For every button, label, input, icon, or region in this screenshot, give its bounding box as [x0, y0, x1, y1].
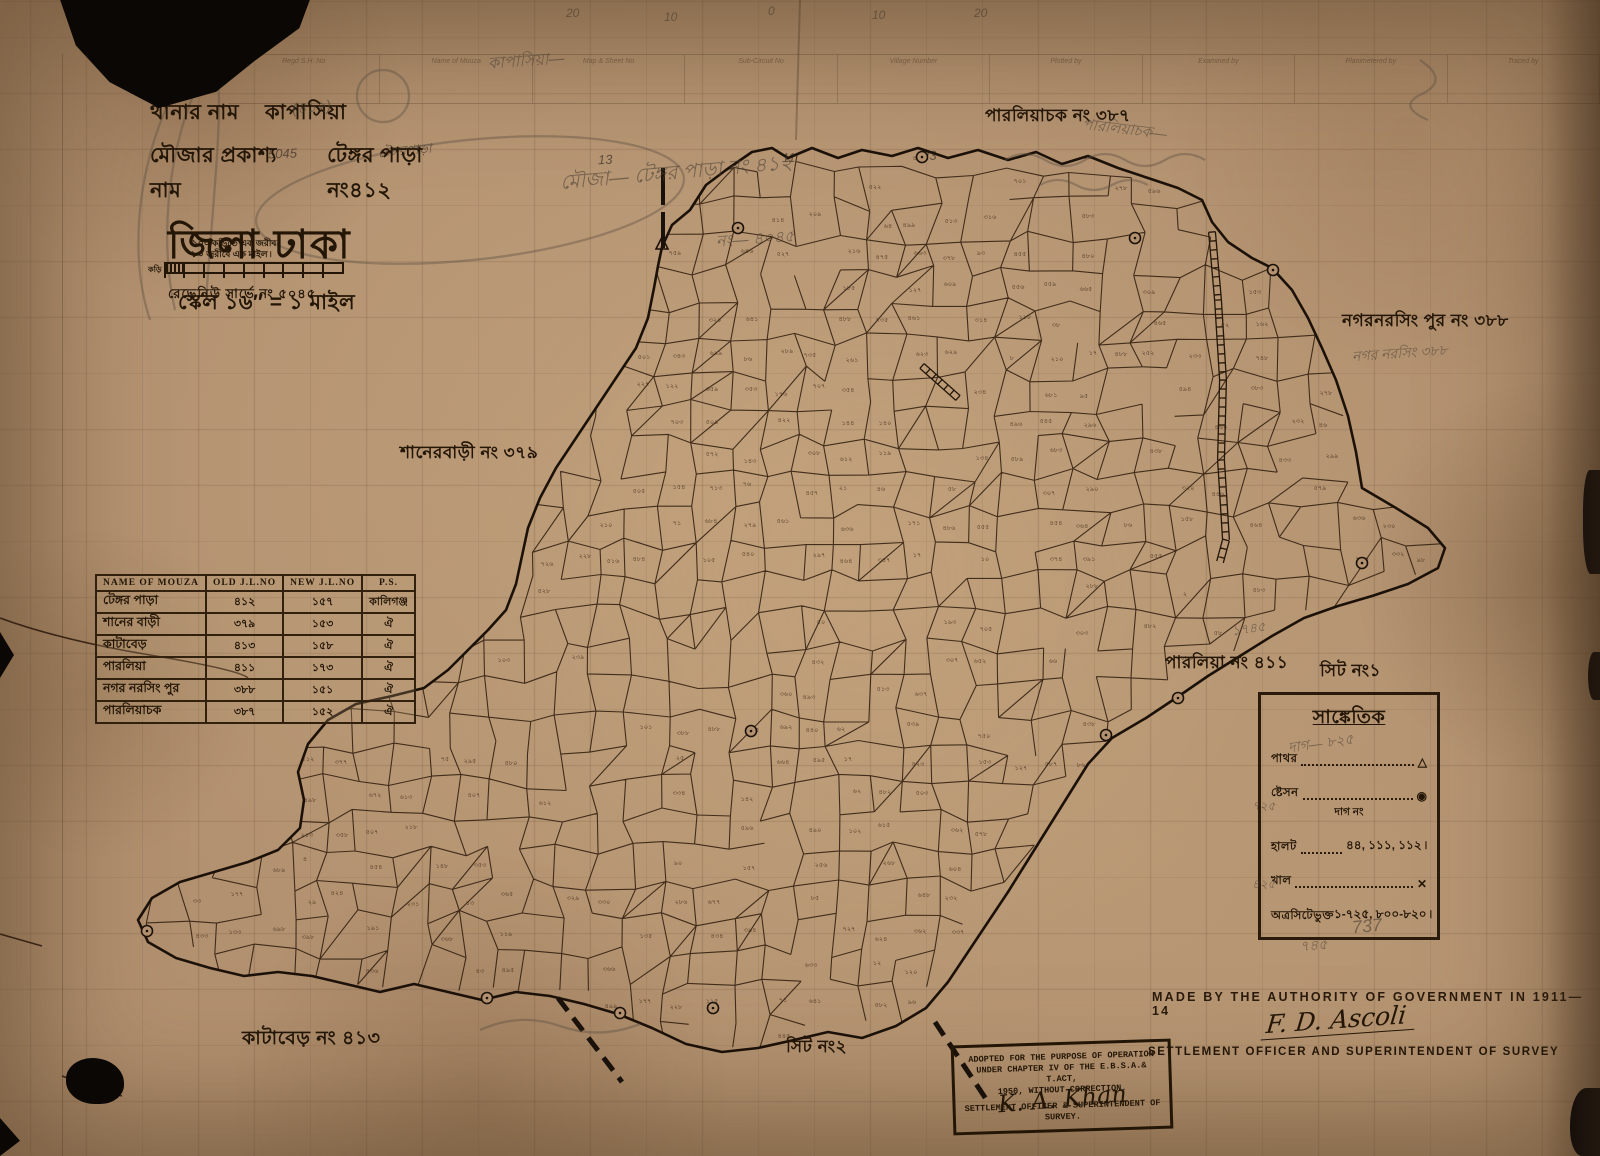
svg-text:৫২২: ৫২২: [869, 183, 882, 191]
pencil-note: ৭৪৫: [1299, 933, 1328, 959]
svg-text:৫৮২: ৫৮২: [875, 1001, 888, 1009]
svg-text:২৬১: ২৬১: [846, 356, 859, 364]
svg-text:৮৬: ৮৬: [1124, 521, 1133, 529]
svg-text:১১৯: ১১৯: [879, 449, 892, 457]
svg-text:৬৬৫: ৬৬৫: [1080, 285, 1093, 293]
svg-text:১১৫: ১১৫: [706, 997, 719, 1005]
table-row: টেঙ্গর পাড়া৪১২১৫৭কালিগঞ্জ: [96, 591, 415, 613]
svg-text:৬৬৪: ৬৬৪: [777, 758, 790, 766]
mouza-value: টেঙ্গর পাড়া নং৪১২: [327, 139, 480, 209]
dotted-leader: [1301, 764, 1413, 766]
svg-text:৩৬৪: ৩৬৪: [1076, 522, 1089, 530]
svg-text:৪৬০: ৪৬০: [1215, 423, 1228, 431]
svg-text:৪২২: ৪২২: [778, 416, 791, 424]
dotted-leader: [1295, 886, 1412, 888]
svg-text:৩৭৮: ৩৭৮: [943, 254, 956, 262]
svg-text:৫৪০: ৫৪০: [742, 550, 755, 558]
svg-text:৩২০: ৩২০: [709, 316, 722, 324]
form-column-header: Village Number: [838, 55, 990, 103]
svg-text:২: ২: [1183, 590, 1187, 598]
scale-bar-block: ১০০ কড়িতে এক জরীব ৷ ৮০ জরীবে এক মাইল ৷ …: [148, 238, 373, 306]
svg-text:৮৫: ৮৫: [811, 894, 819, 902]
svg-text:৪৬: ৪৬: [1319, 421, 1328, 429]
torn-blob-bottom-left: [66, 1058, 124, 1104]
ruler-number: 20: [974, 6, 987, 20]
svg-text:৩৩৪: ৩৩৪: [673, 789, 686, 797]
table-cell: ১৫৮: [283, 635, 362, 657]
svg-text:৭০৫: ৭০৫: [980, 625, 993, 633]
svg-text:১৭৭: ১৭৭: [231, 890, 244, 898]
svg-text:১০১: ১০১: [640, 723, 653, 731]
svg-text:৫৫৬: ৫৫৬: [1012, 283, 1025, 291]
svg-text:১২২: ১২২: [666, 382, 679, 390]
torn-edge-left: [0, 632, 14, 678]
svg-text:২২৭: ২২৭: [637, 380, 650, 388]
svg-text:২৩৩: ২৩৩: [1189, 352, 1202, 360]
svg-text:৩২০: ৩২০: [1182, 484, 1195, 492]
svg-text:৭২৭: ৭২৭: [843, 925, 856, 933]
svg-text:৩১৬: ৩১৬: [984, 213, 997, 221]
table-cell: ঐ: [362, 657, 415, 679]
svg-text:১৫৭: ১৫৭: [743, 864, 756, 872]
svg-text:২৭৮: ২৭৮: [1320, 389, 1333, 397]
form-column-header: Examined by: [1143, 55, 1295, 103]
svg-text:৪৪৬: ৪৪৬: [1212, 490, 1225, 498]
svg-text:৬০৪: ৬০৪: [949, 865, 962, 873]
svg-text:৫৫৫: ৫৫৫: [977, 523, 990, 531]
legend-symbol-icon: ◉: [1417, 789, 1427, 803]
svg-text:৭০৭: ৭০৭: [813, 382, 826, 390]
scale-bar-graphic: [164, 262, 344, 274]
svg-text:১৭: ১৭: [913, 551, 921, 559]
svg-text:৪৩৩: ৪৩৩: [196, 932, 209, 940]
officer-title-line: SETTLEMENT OFFICER AND SUPERINTENDENT OF…: [1148, 1046, 1559, 1058]
svg-text:৬২৪: ৬২৪: [875, 935, 888, 943]
svg-text:২৯: ২৯: [308, 898, 317, 906]
svg-text:৩২৯: ৩২৯: [567, 894, 580, 902]
svg-text:৩৫৩: ৩৫৩: [474, 861, 487, 869]
legend-value: ১-৭২৫, ৮০০-৮২০ ৷: [1334, 906, 1432, 926]
svg-text:২৯৯: ২৯৯: [1326, 452, 1339, 460]
svg-text:৬১২: ৬১২: [840, 455, 853, 463]
svg-text:৪৯৫: ৪৯৫: [502, 966, 515, 974]
svg-text:১৫৮: ১৫৮: [1181, 515, 1194, 523]
svg-text:৪৩৮: ৪৩৮: [1150, 447, 1163, 455]
svg-text:২৯০: ২৯০: [1086, 485, 1099, 493]
table-row: পারলিয়াচক৩৮৭১৫২ঐ: [96, 701, 415, 723]
svg-text:১১৯: ১১৯: [500, 930, 513, 938]
table-cell: ৩৭৯: [206, 613, 283, 635]
svg-text:৬৩৬: ৬৩৬: [841, 525, 854, 533]
svg-text:৬৫২: ৬৫২: [974, 657, 987, 665]
svg-text:৬৫৯: ৬৫৯: [706, 385, 719, 393]
svg-text:৬৭২: ৬৭২: [369, 791, 382, 799]
pencil-note: ৪২৫: [1252, 876, 1275, 896]
svg-text:১০২: ১০২: [849, 827, 862, 835]
svg-text:৫০৭: ৫০৭: [366, 828, 379, 836]
svg-text:৫০১: ৫০১: [638, 353, 651, 361]
svg-text:১৫৩: ১৫৩: [979, 758, 992, 766]
svg-text:২৯৭: ২৯৭: [813, 551, 826, 559]
ruler-number: 10: [872, 8, 885, 22]
svg-text:৫৮০: ৫৮০: [505, 759, 518, 767]
table-cell: ১৫৭: [283, 591, 362, 613]
svg-text:১৭: ১৭: [1089, 349, 1097, 357]
svg-text:৬০৯: ৬০৯: [944, 280, 957, 288]
svg-text:২৩২: ২৩২: [1292, 417, 1305, 425]
svg-text:২৬৮: ২৬৮: [883, 859, 896, 867]
legend-label: হালট: [1271, 838, 1297, 857]
svg-text:৬২: ৬২: [853, 787, 861, 795]
svg-text:১১৮: ১১৮: [1019, 313, 1032, 321]
svg-text:৭৫: ৭৫: [441, 755, 449, 763]
svg-text:৩০৯: ৩০৯: [1143, 288, 1156, 296]
form-column-header: Planimetered by: [1295, 55, 1447, 103]
svg-text:৪৩৩: ৪৩৩: [1279, 456, 1292, 464]
svg-text:৪১৪: ৪১৪: [772, 216, 785, 224]
svg-text:৬৪৮: ৬৪৮: [918, 891, 931, 899]
svg-text:৯৮: ৯৮: [1417, 556, 1426, 564]
dark-right-edge: [1544, 0, 1600, 1156]
svg-text:৪৩২: ৪৩২: [812, 658, 825, 666]
form-column-header: Plotted by: [990, 55, 1142, 103]
svg-text:৪৯৮: ৪৯৮: [304, 796, 317, 804]
svg-text:৭৫০: ৭৫০: [978, 732, 991, 740]
sheet-number-1-label: সিট নং১: [1320, 658, 1381, 686]
svg-text:২৩১: ২৩১: [407, 900, 420, 908]
svg-text:৩৯৮: ৩৯৮: [302, 933, 315, 941]
svg-text:৭০১: ৭০১: [1014, 177, 1027, 185]
svg-text:৪৮৮: ৪৮৮: [708, 725, 721, 733]
svg-text:৩৩০: ৩৩০: [598, 898, 611, 906]
svg-text:৫৮৭: ৫৮৭: [1045, 760, 1058, 768]
svg-text:৪৫৭: ৪৫৭: [806, 489, 819, 497]
table-cell: ১৫২: [283, 701, 362, 723]
svg-text:২২৮: ২২৮: [579, 552, 592, 560]
mouza-table-header: NAME OF MOUZA: [96, 575, 206, 591]
svg-text:৫২: ৫২: [1221, 321, 1229, 329]
table-cell: ঐ: [362, 635, 415, 657]
svg-text:৮৬: ৮৬: [744, 355, 753, 363]
svg-text:৬৮৯: ৬৮৯: [273, 866, 286, 874]
sheet-number-2-label: সিট নং২: [786, 1034, 847, 1062]
svg-text:৪৬৫: ৪৬৫: [1154, 319, 1167, 327]
svg-text:১২: ১২: [873, 959, 881, 967]
region-label-nagarnarsingpur: নগরনরসিং পুর নং ৩৮৮: [1342, 308, 1509, 336]
ruler-number: 20: [566, 6, 579, 20]
table-row: শানের বাড়ী৩৭৯১৫৩ঐ: [96, 613, 415, 635]
svg-text:১৩৪: ১৩৪: [976, 454, 989, 462]
svg-text:৪৫৫: ৪৫৫: [1014, 250, 1027, 258]
svg-text:৮: ৮: [1010, 354, 1015, 362]
svg-text:৩৯৪: ৩৯৪: [744, 926, 757, 934]
svg-text:৫০৫: ৫০৫: [633, 487, 646, 495]
svg-text:২৭৯: ২৭৯: [744, 521, 757, 529]
svg-text:৪৮৮: ৪৮৮: [839, 315, 852, 323]
svg-text:৫৯৪: ৫৯৪: [1179, 385, 1192, 393]
torn-corner-bottom-right: [1570, 1088, 1600, 1156]
mouza-table-header: OLD J.L.NO: [206, 575, 283, 591]
svg-text:৪৭৫: ৪৭৫: [876, 253, 889, 261]
table-cell: নগর নরসিং পুর: [96, 679, 206, 701]
svg-text:৩৩৭: ৩৩৭: [952, 928, 965, 936]
svg-text:১৪২: ১৪২: [741, 795, 754, 803]
table-cell: ১৫৩: [283, 613, 362, 635]
svg-text:২২৮: ২২৮: [670, 1003, 683, 1011]
svg-text:৪৮৮: ৪৮৮: [1115, 350, 1128, 358]
svg-text:২১৬: ২১৬: [848, 247, 861, 255]
table-cell: ৩৮৮: [206, 679, 283, 701]
svg-text:৩০৮: ৩০৮: [808, 449, 821, 457]
svg-text:৬৪: ৬৪: [884, 222, 892, 230]
svg-text:১৭: ১৭: [844, 755, 852, 763]
svg-text:২৫: ২৫: [676, 754, 684, 762]
table-cell: শানের বাড়ী: [96, 613, 206, 635]
svg-text:৩৩২: ৩৩২: [1392, 550, 1405, 558]
svg-text:১৪০: ১৪০: [879, 419, 892, 427]
svg-text:৪৮৪: ৪৮৪: [633, 555, 646, 563]
svg-text:৮৬: ৮৬: [1077, 761, 1086, 769]
svg-text:৫৮: ৫৮: [1214, 629, 1223, 637]
svg-text:৪৩৮: ৪৩৮: [1083, 720, 1096, 728]
svg-text:৩৫৩: ৩৫৩: [745, 385, 758, 393]
svg-text:৬৮৪: ৬৮৪: [705, 517, 718, 525]
scale-left-label: কড়ি: [148, 264, 162, 277]
legend-label: অত্রসিটেভুক্ত: [1271, 907, 1334, 926]
svg-text:১৭৭: ১৭৭: [639, 997, 652, 1005]
svg-text:৪০৭: ৪০৭: [468, 791, 481, 799]
table-cell: ৪১২: [206, 591, 283, 613]
table-row: কাটাবেড়৪১৩১৫৮ঐ: [96, 635, 415, 657]
svg-text:৭২৬: ৭২৬: [1356, 555, 1369, 563]
svg-text:২৫৬: ২৫৬: [815, 861, 828, 869]
mouza-table-header: NEW J.L.NO: [283, 575, 362, 591]
table-cell: কাটাবেড়: [96, 635, 206, 657]
svg-text:৪২৩: ৪২৩: [912, 760, 925, 768]
ruler-number: 10: [664, 10, 677, 24]
svg-text:৪৫৪: ৪৫৪: [370, 863, 383, 871]
table-cell: ঐ: [362, 701, 415, 723]
svg-text:৬৬৩: ৬৬৩: [914, 249, 927, 257]
mouza-label: মৌজার প্রকাশ্য নাম: [150, 139, 301, 209]
svg-text:১০৫: ১০৫: [703, 556, 716, 564]
svg-text:৪৮৬: ৪৮৬: [943, 524, 956, 532]
svg-text:৫১৩: ৫১৩: [877, 685, 890, 693]
svg-text:১২৭: ১২৭: [909, 286, 922, 294]
table-cell: ঐ: [362, 613, 415, 635]
table-row: নগর নরসিং পুর৩৮৮১৫১ঐ: [96, 679, 415, 701]
table-cell: টেঙ্গর পাড়া: [96, 591, 206, 613]
svg-text:১৫৪: ১৫৪: [673, 483, 686, 491]
table-cell: ৪১৩: [206, 635, 283, 657]
svg-text:৪৯৩: ৪৯৩: [803, 693, 816, 701]
region-label-katabedh: কাটাবেড় নং ৪১৩: [242, 1024, 381, 1056]
table-cell: ঐ: [362, 679, 415, 701]
svg-text:২১৮: ২১৮: [405, 823, 418, 831]
svg-text:২৯৬: ২৯৬: [1084, 421, 1097, 429]
legend-value: ৪৪, ১১১, ১১২ ৷: [1346, 837, 1427, 857]
svg-text:১৪৭: ১৪৭: [878, 149, 891, 157]
svg-text:৩৫৮: ৩৫৮: [336, 831, 349, 839]
torn-edge-right-1: [1583, 470, 1600, 574]
svg-text:৭১: ৭১: [673, 519, 681, 527]
svg-text:৬১৩: ৬১৩: [400, 793, 413, 801]
svg-text:১২৭: ১২৭: [1015, 764, 1028, 772]
table-row: পারলিয়া৪১১১৭৩ঐ: [96, 657, 415, 679]
pencil-note: নং— ৪০৪৫: [715, 223, 795, 255]
svg-text:১৩: ১৩: [466, 899, 475, 907]
legend-row: হালট৪৪, ১১১, ১১২ ৷: [1271, 837, 1427, 857]
table-cell: ৪১১: [206, 657, 283, 679]
svg-text:৩৪৩: ৩৪৩: [673, 352, 686, 360]
svg-text:৬২৩: ৬২৩: [916, 350, 929, 358]
dotted-leader: [1301, 852, 1342, 854]
svg-text:২৭৮: ২৭৮: [1115, 184, 1128, 192]
svg-text:৫০৩: ৫০৩: [916, 789, 929, 797]
svg-text:৫৩৯: ৫৩৯: [907, 720, 920, 728]
svg-text:৫৫৯: ৫৫৯: [1044, 280, 1057, 288]
svg-text:২১০: ২১০: [600, 521, 613, 529]
svg-text:২৩০: ২৩০: [1383, 522, 1396, 530]
svg-text:১৯২: ১৯২: [1084, 153, 1097, 161]
form-left-margin-line: [62, 54, 63, 1156]
svg-text:১৯১: ১৯১: [367, 924, 380, 932]
table-cell: কালিগঞ্জ: [362, 591, 415, 613]
svg-text:১৪৪: ১৪৪: [842, 419, 855, 427]
mouza-table-header: P.S.: [362, 575, 415, 591]
svg-text:৯৫: ৯৫: [1080, 392, 1088, 400]
pencil-note: নগর নরসিং ৩৮৮: [1351, 339, 1448, 370]
svg-text:৫২৮: ৫২৮: [538, 587, 551, 595]
svg-text:১৪৩: ১৪৩: [744, 457, 757, 465]
svg-text:৩৮: ৩৮: [1052, 321, 1061, 329]
svg-text:৩৮৮: ৩৮৮: [677, 729, 690, 737]
table-cell: পারলিয়াচক: [96, 701, 206, 723]
svg-text:১৭১: ১৭১: [908, 519, 921, 527]
svg-text:১১২: ১১২: [302, 755, 315, 763]
svg-text:৪৬১: ৪৬১: [908, 314, 921, 322]
pencil-note: কাপাসিয়া—: [487, 45, 565, 77]
legend-row: অত্রসিটেভুক্ত১-৭২৫, ৮০০-৮২০ ৷: [1271, 906, 1427, 926]
svg-text:৭৫৯: ৭৫৯: [669, 249, 682, 257]
svg-text:৫৬১: ৫৬১: [777, 517, 790, 525]
ruler-number: 0: [768, 4, 775, 18]
svg-text:৫৮৩: ৫৮৩: [1082, 212, 1095, 220]
svg-text:৩১৪: ৩১৪: [975, 316, 988, 324]
svg-text:৪৮০: ৪৮০: [1082, 252, 1095, 260]
svg-text:৪৮২: ৪৮২: [1144, 622, 1157, 630]
svg-text:৪৮২: ৪৮২: [879, 788, 892, 796]
svg-text:৩০৩: ৩০৩: [1076, 629, 1089, 637]
svg-text:৭৫৫: ৭৫৫: [747, 726, 760, 734]
region-label-shanerbari: শানেরবাড়ী নং ৩৭৯: [400, 440, 538, 468]
svg-text:৭৬: ৭৬: [743, 480, 752, 488]
svg-text:৪: ৪: [303, 855, 307, 863]
svg-text:৭১: ৭১: [779, 996, 787, 1004]
svg-text:৪৯৯: ৪৯৯: [605, 1002, 618, 1010]
svg-text:৬৯৯: ৬৯৯: [710, 349, 723, 357]
table-cell: ১৭৩: [283, 657, 362, 679]
svg-text:৬৮১: ৬৮১: [1045, 391, 1058, 399]
table-cell: ১৫১: [283, 679, 362, 701]
svg-text:২৮৬: ২৮৬: [675, 898, 688, 906]
svg-text:৬৯২: ৬৯২: [780, 723, 793, 731]
svg-text:৬৬: ৬৬: [1049, 657, 1058, 665]
svg-text:৫৭৮: ৫৭৮: [975, 830, 988, 838]
svg-text:৫১৬: ৫১৬: [607, 557, 620, 565]
svg-text:৩৩: ৩৩: [193, 897, 202, 905]
svg-text:৬১৫: ৬১৫: [878, 821, 891, 829]
svg-text:৬৩৩: ৬৩৩: [805, 961, 818, 969]
pencil-note: (৪১২): [291, 94, 332, 122]
svg-text:৭০৩: ৭০৩: [671, 418, 684, 426]
pencil-note: ১৭৪৫: [1231, 618, 1267, 643]
svg-text:৫৯৬: ৫৯৬: [741, 824, 754, 832]
svg-text:৯৬: ৯৬: [908, 998, 917, 1006]
svg-text:৬৪১: ৬৪১: [746, 315, 759, 323]
revenue-survey-number: রেভেনিউ সার্ভে নং ৫০৪৫: [168, 285, 373, 306]
svg-text:৩৬৮: ৩৬৮: [441, 935, 454, 943]
svg-text:৪৩: ৪৩: [476, 967, 485, 975]
svg-text:৭১৩: ৭১৩: [710, 484, 723, 492]
svg-text:৪৩৬: ৪৩৬: [366, 967, 379, 975]
svg-text:৬১২: ৬১২: [539, 799, 552, 807]
svg-text:১৩৫: ১৩৫: [640, 932, 653, 940]
svg-text:৯০: ৯০: [674, 859, 682, 867]
svg-text:২৯৫: ২৯৫: [464, 757, 477, 765]
svg-text:৯৩: ৯৩: [977, 249, 986, 257]
svg-text:৫৭৯: ৫৭৯: [1314, 484, 1327, 492]
svg-text:৭৩৫: ৭৩৫: [804, 351, 817, 359]
svg-text:৬৩৭: ৬৩৭: [915, 690, 928, 698]
legend-row: ষ্টেসন◉: [1271, 784, 1427, 803]
adoption-stamp: ADOPTED FOR THE PURPOSE OF OPERATION UND…: [951, 1039, 1174, 1136]
svg-text:১৭৬: ১৭৬: [775, 390, 788, 398]
legend-symbol-icon: ✕: [1417, 877, 1427, 891]
svg-text:১২০: ১২০: [905, 968, 918, 976]
svg-text:২৩৯: ২৩৯: [572, 653, 585, 661]
svg-text:৩৬৫: ৩৬৫: [501, 890, 514, 898]
svg-text:৩৬৬: ৩৬৬: [603, 965, 616, 973]
legend-row: খাল✕: [1271, 872, 1427, 891]
svg-text:৩০৭: ৩০৭: [1043, 489, 1056, 497]
form-entry: 23: [922, 148, 937, 164]
svg-text:৫৮৩: ৫৮৩: [1253, 586, 1266, 594]
svg-text:১০: ১০: [981, 555, 989, 563]
svg-text:৪৩৪: ৪৩৪: [711, 932, 724, 940]
svg-text:৪৬৪: ৪৬৪: [1250, 521, 1263, 529]
svg-text:৬৮৩: ৬৮৩: [1050, 446, 1063, 454]
svg-text:১৯৩: ১৯৩: [944, 618, 957, 626]
svg-text:৫০৯: ৫০৯: [706, 418, 719, 426]
svg-text:৩৪৭: ৩৪৭: [878, 556, 891, 564]
svg-text:৪৬৪: ৪৬৪: [840, 557, 853, 565]
svg-text:৩৭৪: ৩৭৪: [1050, 555, 1063, 563]
svg-text:২১: ২১: [839, 484, 847, 492]
scale-note-1: ১০০ কড়িতে এক জরীব ৷: [192, 238, 373, 249]
svg-text:৬৯৮: ৬৯৮: [273, 925, 286, 933]
torn-edge-right-2: [1588, 652, 1600, 700]
svg-text:৫৮৯: ৫৮৯: [1011, 455, 1024, 463]
svg-text:৩৮৩: ৩৮৩: [1251, 384, 1264, 392]
svg-text:৫৪৫: ৫৪৫: [1040, 417, 1053, 425]
svg-text:২১০: ২১০: [1051, 355, 1064, 363]
region-label-parlia: পারলিয়া নং ৪১১: [1165, 650, 1288, 678]
scale-note-2: ৮০ জরীবে এক মাইল ৷: [192, 249, 373, 260]
svg-text:২১৩: ২১৩: [301, 831, 314, 839]
svg-text:৩০৭: ৩০৭: [946, 656, 959, 664]
torn-edge-bottom-left: [0, 1118, 20, 1156]
